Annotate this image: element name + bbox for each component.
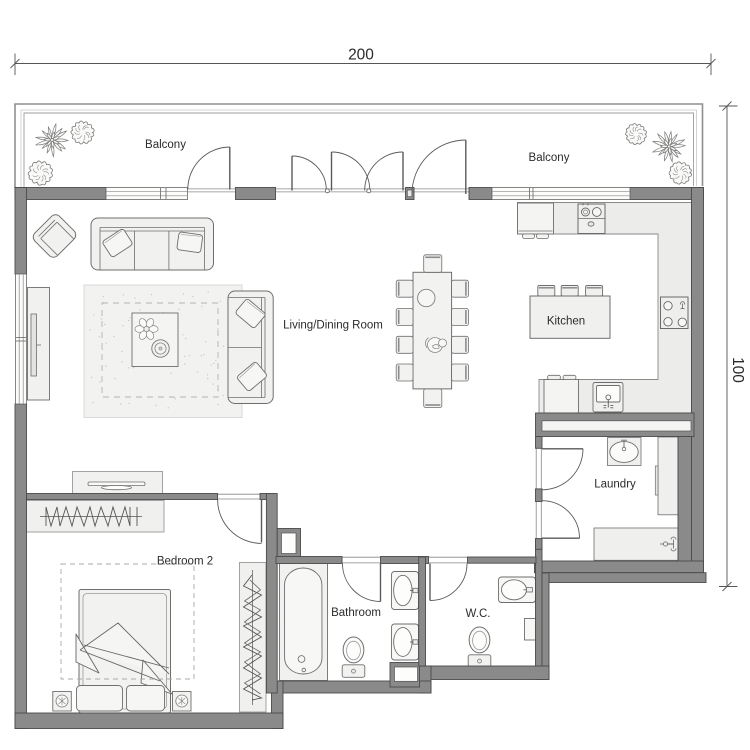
svg-text:W.C.: W.C. <box>466 608 491 620</box>
svg-text:Bedroom 2: Bedroom 2 <box>157 556 213 568</box>
svg-text:100: 100 <box>729 357 746 383</box>
svg-text:Kitchen: Kitchen <box>547 316 585 328</box>
svg-text:200: 200 <box>348 47 374 64</box>
svg-text:Balcony: Balcony <box>529 152 570 164</box>
svg-text:Bathroom: Bathroom <box>331 607 381 619</box>
svg-text:Balcony: Balcony <box>145 139 186 151</box>
svg-text:Living/Dining Room: Living/Dining Room <box>283 320 383 332</box>
svg-text:Laundry: Laundry <box>594 479 636 491</box>
